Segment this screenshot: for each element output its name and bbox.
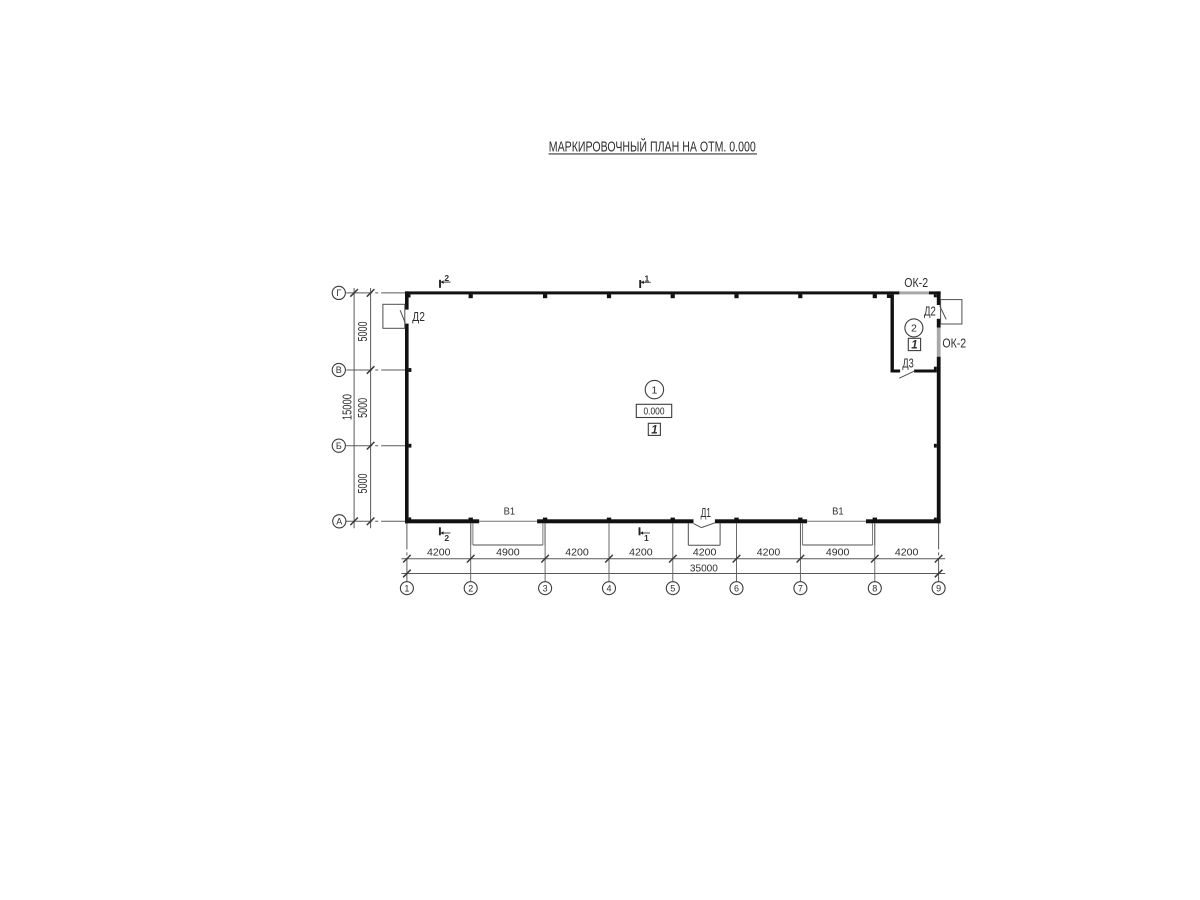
svg-text:1: 1 [651, 384, 657, 396]
svg-text:Д1: Д1 [701, 505, 711, 520]
svg-text:35000: 35000 [690, 564, 718, 575]
svg-text:2: 2 [444, 273, 449, 283]
svg-text:5000: 5000 [356, 473, 370, 493]
svg-text:4200: 4200 [895, 548, 919, 559]
svg-text:2: 2 [468, 583, 473, 593]
svg-text:4200: 4200 [427, 548, 451, 559]
svg-text:4200: 4200 [757, 548, 781, 559]
svg-text:3: 3 [543, 583, 548, 593]
svg-text:7: 7 [798, 583, 803, 593]
svg-text:2: 2 [444, 533, 449, 543]
svg-text:ОК-2: ОК-2 [942, 335, 966, 350]
svg-text:В: В [336, 365, 342, 375]
svg-text:Д2: Д2 [412, 309, 425, 324]
svg-text:1: 1 [651, 425, 657, 437]
svg-text:4200: 4200 [629, 548, 653, 559]
svg-text:В1: В1 [832, 506, 844, 518]
svg-text:Д3: Д3 [902, 355, 913, 370]
svg-text:8: 8 [872, 583, 877, 593]
svg-text:1: 1 [404, 583, 409, 593]
svg-text:0.000: 0.000 [644, 406, 665, 417]
svg-text:4200: 4200 [565, 548, 589, 559]
svg-text:4900: 4900 [496, 548, 520, 559]
svg-text:4: 4 [606, 583, 611, 593]
svg-text:5000: 5000 [356, 398, 370, 418]
svg-text:ОК-2: ОК-2 [904, 275, 928, 290]
svg-text:МАРКИРОВОЧНЫЙ ПЛАН НА ОТМ. 0.0: МАРКИРОВОЧНЫЙ ПЛАН НА ОТМ. 0.000 [549, 137, 756, 155]
svg-text:А: А [336, 516, 342, 526]
svg-text:1: 1 [911, 340, 917, 352]
svg-text:4900: 4900 [826, 548, 850, 559]
svg-text:15000: 15000 [341, 394, 355, 420]
svg-text:1: 1 [645, 273, 650, 283]
svg-text:4200: 4200 [693, 548, 717, 559]
svg-text:5000: 5000 [356, 321, 370, 341]
svg-text:Г: Г [336, 288, 341, 298]
svg-text:Д2: Д2 [924, 303, 936, 318]
svg-text:5: 5 [670, 583, 675, 593]
svg-text:1: 1 [644, 533, 649, 543]
svg-text:В1: В1 [504, 506, 516, 518]
svg-text:2: 2 [911, 323, 917, 335]
svg-text:9: 9 [936, 583, 941, 593]
svg-text:6: 6 [734, 583, 739, 593]
svg-text:Б: Б [336, 441, 342, 451]
